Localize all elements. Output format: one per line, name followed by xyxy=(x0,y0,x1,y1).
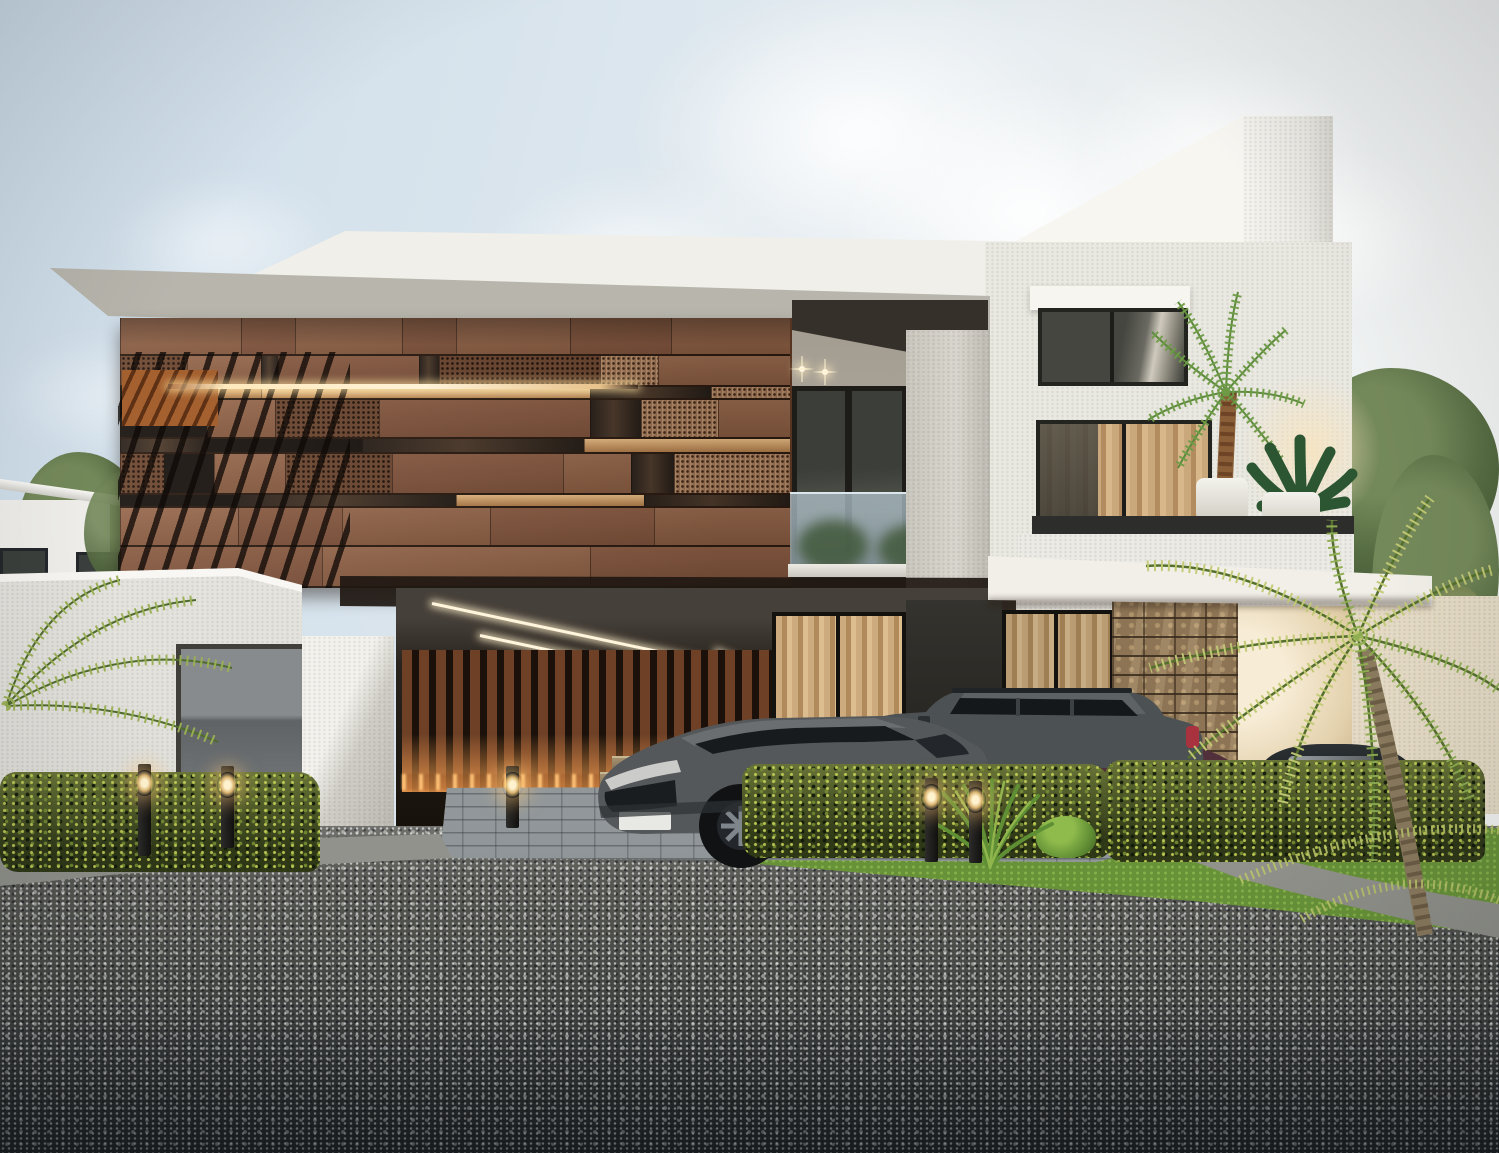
bollard-light xyxy=(925,778,938,862)
bollard-light xyxy=(969,781,982,863)
bollard-lamp-glow xyxy=(921,784,942,810)
bollard-lamp-glow xyxy=(965,787,986,813)
bollard-lamp-glow xyxy=(502,772,523,798)
bollard-light xyxy=(506,766,519,828)
right-palm-icon xyxy=(1120,420,1499,950)
bollard-lamp-glow xyxy=(217,772,238,798)
bollard-light xyxy=(138,764,151,856)
bollard-light xyxy=(221,766,234,848)
bollard-lamp-glow xyxy=(134,770,155,796)
render-canvas xyxy=(0,0,1499,1153)
